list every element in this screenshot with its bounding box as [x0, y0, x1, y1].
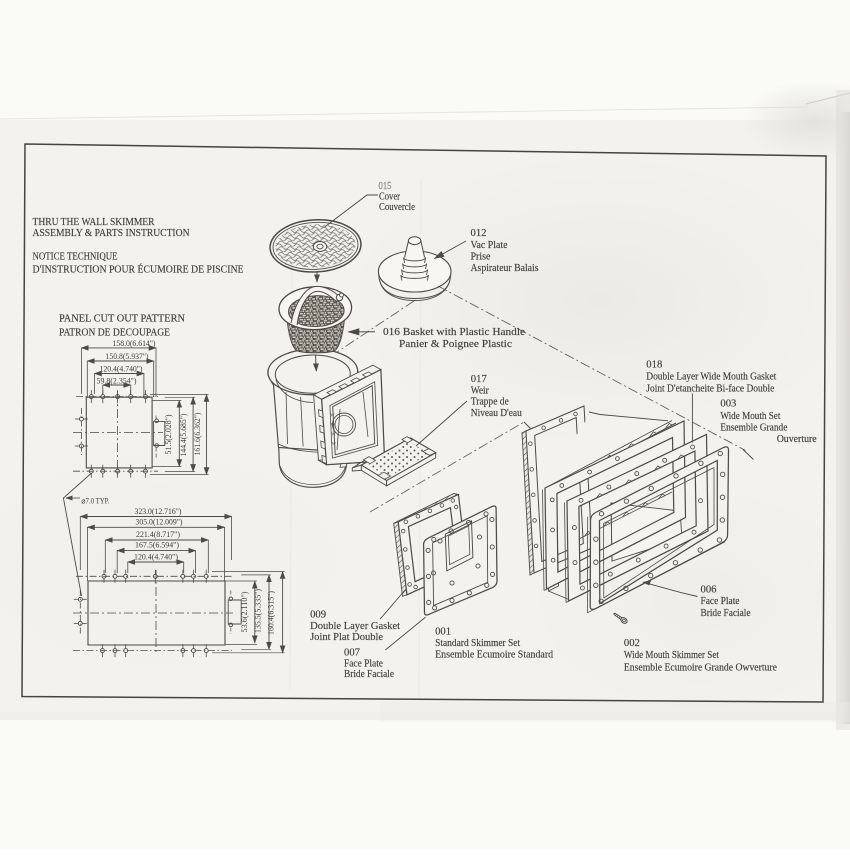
- svg-text:221.4(8.717"): 221.4(8.717"): [136, 530, 180, 539]
- svg-text:015: 015: [379, 181, 392, 192]
- svg-text:Vac Plate: Vac Plate: [471, 240, 508, 251]
- svg-text:305.0(12.009"): 305.0(12.009"): [136, 517, 183, 526]
- svg-text:Bride Faciale: Bride Faciale: [701, 608, 751, 619]
- svg-text:NOTICE TECHNIQUE: NOTICE TECHNIQUE: [33, 251, 118, 263]
- svg-text:Bride Faciale: Bride Faciale: [344, 669, 394, 680]
- svg-text:006: 006: [701, 585, 717, 596]
- svg-text:w: w: [331, 432, 336, 438]
- svg-text:003: 003: [720, 399, 736, 410]
- svg-text:PATRON DE DECOUPAGE: PATRON DE DECOUPAGE: [59, 327, 170, 339]
- svg-text:Ensemble Ecumoire Standard: Ensemble Ecumoire Standard: [435, 650, 554, 661]
- svg-text:Couvercle: Couvercle: [379, 202, 415, 213]
- svg-text:59.8(2.354"): 59.8(2.354"): [97, 376, 137, 385]
- svg-text:144.4(5.685"): 144.4(5.685"): [179, 413, 188, 456]
- svg-text:Double Layer Wide Mouth Gasket: Double Layer Wide Mouth Gasket: [646, 371, 776, 382]
- svg-text:Cover: Cover: [379, 192, 400, 203]
- svg-text:160.4(6.315"): 160.4(6.315"): [267, 591, 276, 635]
- svg-text:167.5(6.594"): 167.5(6.594"): [135, 540, 179, 549]
- svg-text:Joint D'etancheite Bi-face Dou: Joint D'etancheite Bi-face Double: [646, 384, 774, 395]
- svg-text:Prise: Prise: [471, 252, 491, 263]
- svg-text:323.0(12.716"): 323.0(12.716"): [135, 507, 182, 516]
- svg-text:Ensemble Ecumoire Grande Owver: Ensemble Ecumoire Grande Owverture: [624, 663, 777, 674]
- svg-text:120.4(4.740"): 120.4(4.740"): [100, 365, 143, 374]
- svg-text:017: 017: [471, 374, 487, 385]
- svg-text:161.6(6.362"): 161.6(6.362"): [193, 412, 202, 455]
- svg-text:Ensemble Grande: Ensemble Grande: [720, 423, 787, 434]
- svg-text:Panier & Poignee Plastic: Panier & Poignee Plastic: [399, 338, 512, 350]
- svg-text:ASSEMBLY & PARTS INSTRUCTION: ASSEMBLY & PARTS INSTRUCTION: [33, 227, 190, 239]
- svg-text:D'INSTRUCTION POUR ÉCUMOIRE DE: D'INSTRUCTION POUR ÉCUMOIRE DE PISCINE: [33, 264, 244, 276]
- svg-text:158.0(6.614"): 158.0(6.614"): [113, 339, 156, 348]
- svg-text:018: 018: [646, 360, 662, 371]
- svg-text:Wide Mouth Skimmer Set: Wide Mouth Skimmer Set: [624, 650, 719, 661]
- svg-text:120.4(4.740"): 120.4(4.740"): [134, 552, 178, 561]
- svg-text:001: 001: [435, 626, 451, 637]
- svg-text:009: 009: [310, 609, 326, 620]
- svg-text:Wide Mouth Set: Wide Mouth Set: [720, 411, 780, 422]
- svg-text:Double Layer Gasket: Double Layer Gasket: [310, 621, 400, 632]
- svg-text:⌀7.0 TYP.: ⌀7.0 TYP.: [81, 497, 109, 506]
- svg-text:002: 002: [624, 638, 640, 649]
- svg-text:Face Plate: Face Plate: [701, 596, 740, 607]
- svg-text:Niveau D'eau: Niveau D'eau: [471, 408, 523, 419]
- svg-text:016 Basket with Plastic Handle: 016 Basket with Plastic Handle: [383, 326, 525, 338]
- svg-text:w: w: [330, 412, 335, 418]
- svg-text:Joint Plat Double: Joint Plat Double: [310, 632, 383, 643]
- svg-text:007: 007: [344, 648, 360, 659]
- svg-text:PANEL CUT OUT PATTERN: PANEL CUT OUT PATTERN: [59, 313, 185, 325]
- svg-text:w: w: [332, 441, 337, 447]
- svg-text:Trappe de: Trappe de: [471, 397, 509, 408]
- svg-text:w: w: [331, 422, 336, 428]
- svg-text:Face Plate: Face Plate: [344, 659, 383, 670]
- svg-text:Aspirateur Balais: Aspirateur Balais: [471, 263, 539, 274]
- svg-text:Ouverture: Ouverture: [777, 434, 817, 445]
- svg-text:012: 012: [471, 228, 487, 239]
- svg-text:Standard Skimmer Set: Standard Skimmer Set: [435, 638, 520, 649]
- svg-text:150.8(5.937"): 150.8(5.937"): [106, 352, 149, 361]
- svg-text:Weir: Weir: [471, 386, 489, 397]
